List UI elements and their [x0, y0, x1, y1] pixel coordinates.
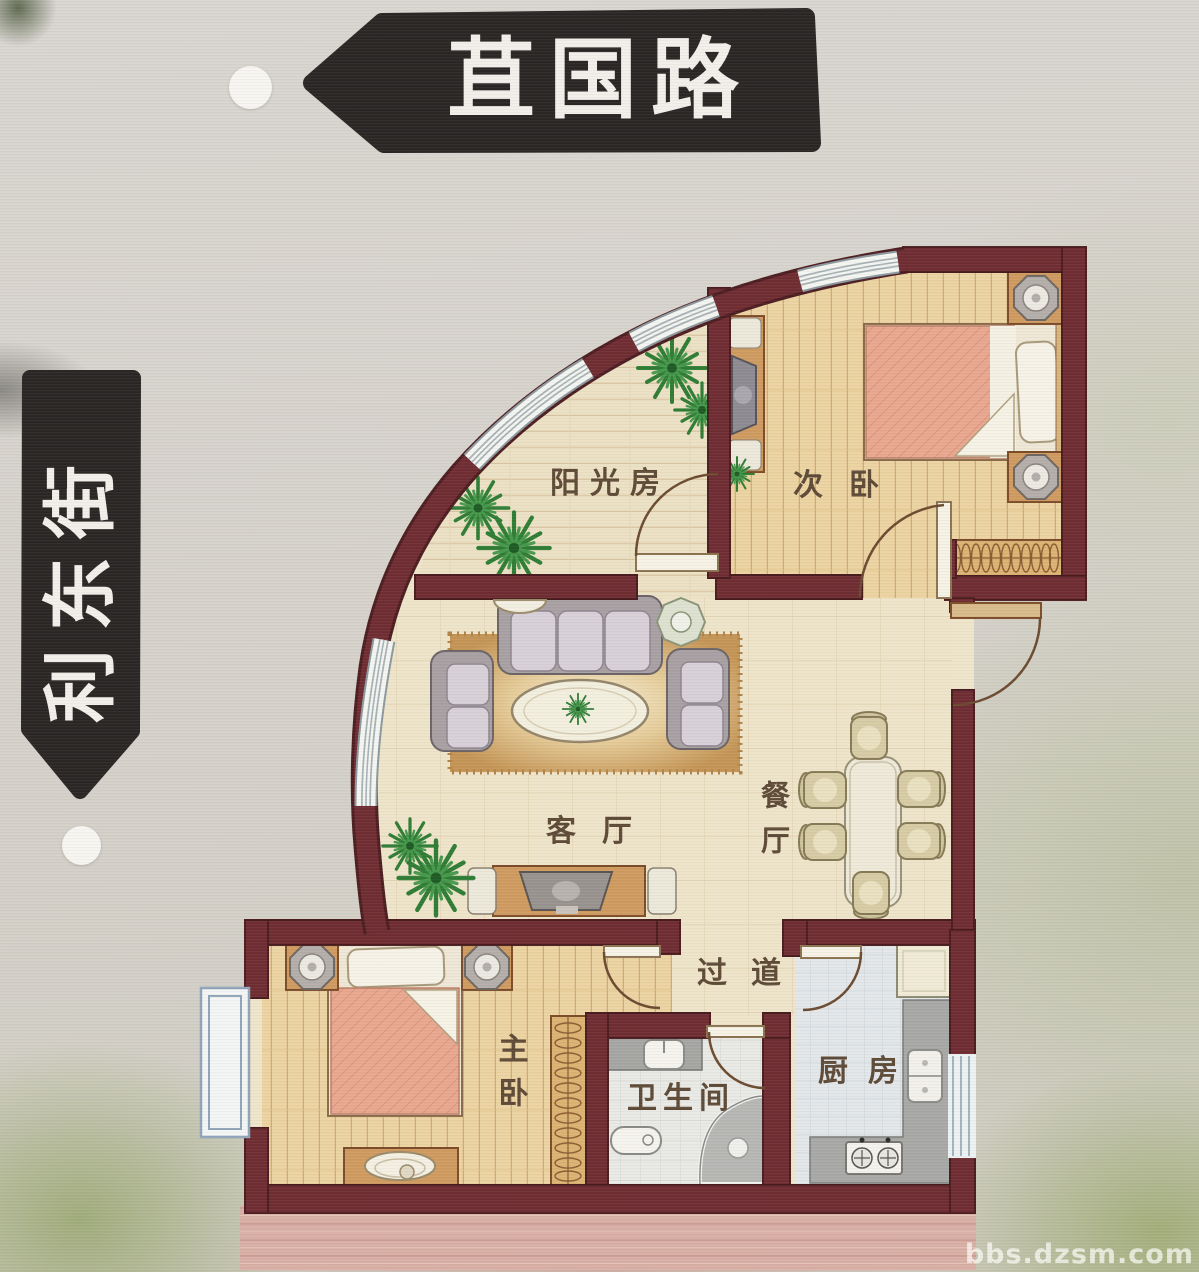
dot-marker: [229, 66, 272, 109]
lamp-icon: [465, 945, 509, 989]
room-label-kitchen: 厨房: [818, 1056, 918, 1088]
speaker: [648, 868, 676, 914]
wall: [245, 920, 268, 998]
dot-marker: [62, 826, 101, 865]
chair: [898, 823, 945, 859]
room-label-living-room: 客厅: [546, 816, 658, 848]
room-label-sunroom: 阳光房: [550, 468, 670, 500]
wall: [903, 247, 1086, 272]
lamp-icon: [1014, 276, 1058, 320]
wall: [245, 1128, 268, 1213]
deck-strip: [240, 1206, 976, 1270]
lamp-icon: [1014, 455, 1058, 499]
room-label-master-bedroom: 主卧: [494, 1033, 526, 1121]
floor-plan: [0, 0, 1199, 1272]
wall: [945, 576, 1086, 600]
wall: [783, 920, 975, 945]
speaker: [729, 440, 761, 470]
wall: [245, 920, 657, 945]
wall: [952, 690, 974, 930]
wall: [763, 1038, 790, 1188]
lamp-icon: [290, 945, 334, 989]
bed-pillow: [1015, 341, 1060, 443]
wall: [708, 288, 730, 578]
wall: [1062, 247, 1086, 600]
watermark: bbs.dzsm.com: [965, 1239, 1194, 1270]
refrigerator: [897, 945, 951, 997]
wall: [763, 1013, 790, 1038]
chair: [853, 872, 889, 919]
chair: [799, 772, 846, 808]
chair: [898, 771, 945, 807]
tv-detail: [734, 386, 752, 404]
street-name-left: 利东街: [14, 365, 148, 805]
road-name-top: 苴国路: [390, 20, 810, 140]
speaker: [468, 868, 496, 914]
chair: [851, 712, 887, 759]
room-label-second-bedroom: 次卧: [793, 470, 905, 502]
wall: [716, 575, 862, 599]
wall: [245, 1185, 975, 1213]
chair: [799, 824, 846, 860]
kitchen-window: [948, 1054, 976, 1158]
bed-pillow: [347, 946, 444, 987]
wall: [415, 575, 637, 599]
master-bedroom-window: [201, 988, 249, 1137]
room-label-dining-room: 餐厅: [758, 780, 788, 870]
room-label-bathroom: 卫生间: [627, 1083, 735, 1115]
room-label-hallway: 过道: [697, 958, 805, 990]
wall: [586, 1013, 608, 1187]
speaker: [729, 318, 761, 348]
